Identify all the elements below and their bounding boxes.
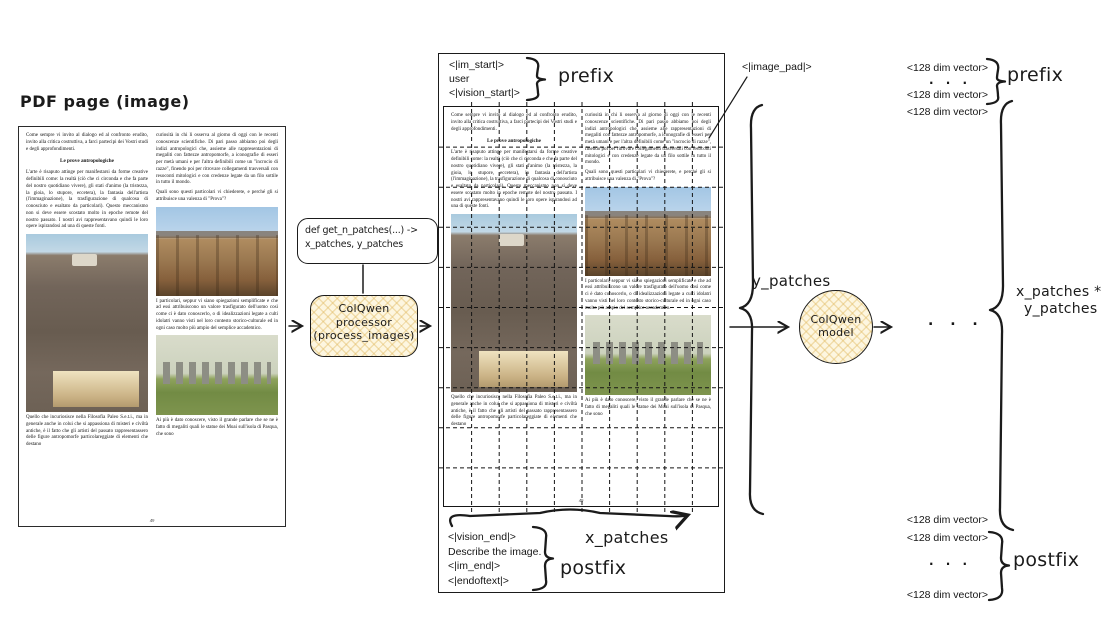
pdf-paragraph: curiosità in chi li osserva al giorno di… — [156, 133, 278, 187]
vision-start-token: <|vision_start|> — [449, 86, 520, 100]
embedding-vector-token: <128 dim vector> — [907, 514, 988, 526]
temple-columns-photo — [156, 207, 278, 296]
pdf-paragraph: Ai più è dato conoscere, visto il grande… — [585, 398, 711, 418]
image-pad-token: <|image_pad|> — [742, 60, 812, 74]
processor-method: (process_images) — [311, 329, 417, 343]
user-token: user — [449, 72, 520, 86]
pdf-paragraph: curiosità in chi li osserva al giorno di… — [585, 113, 711, 167]
pdf-paragraph: Quali sono questi particolari vi chieder… — [156, 190, 278, 204]
output-postfix-label: postfix — [1013, 549, 1079, 571]
colqwen-pipeline-diagram: PDF page (image) Come sempre vi invito a… — [0, 0, 1116, 638]
output-prefix-label: prefix — [1007, 64, 1063, 86]
pdf-paragraph: L'arte è risaputo attinge per manifestar… — [451, 150, 577, 211]
get-n-patches-function-box: def get_n_patches(...) -> x_patches, y_p… — [297, 218, 438, 264]
pdf-paragraph: Quello che incuriosisce nella Filosofia … — [451, 395, 577, 429]
output-prefix-brace — [987, 59, 1005, 104]
pdf-right-column: curiosità in chi li osserva al giorno di… — [585, 113, 711, 500]
embedding-vector-token: <128 dim vector> — [907, 89, 988, 101]
colqwen-processor-node: ColQwen processor (process_images) — [310, 295, 418, 357]
pdf-page-image-copy: Come sempre vi invito al dialogo ed al c… — [444, 107, 718, 506]
ellipsis-patches: . . . — [928, 313, 984, 329]
patched-page-image: Come sempre vi invito al dialogo ed al c… — [443, 106, 719, 507]
pdf-page-image: Come sempre vi invito al dialogo ed al c… — [18, 126, 286, 527]
y-patches-brace — [740, 105, 763, 514]
output-postfix-brace — [989, 532, 1009, 600]
ellipsis-prefix: . . . — [929, 73, 971, 87]
patches-product-line1: x_patches * — [1016, 284, 1101, 301]
x-patches-label: x_patches — [585, 528, 669, 547]
pdf-page-label: PDF page (image) — [20, 92, 190, 111]
pdf-page-number: 49 — [444, 498, 718, 504]
patches-product-line2: y_patches — [1016, 301, 1101, 318]
pdf-paragraph: Ai più è dato conoscere, visto il grande… — [156, 418, 278, 438]
embedding-vector-token: <128 dim vector> — [907, 589, 988, 601]
processor-name-line2: processor — [311, 316, 417, 330]
patches-product-brace — [990, 101, 1013, 530]
temple-columns-photo — [585, 187, 711, 276]
stone-carving-photo — [26, 234, 148, 412]
stonehenge-photo — [156, 335, 278, 415]
embedding-vector-token: <128 dim vector> — [907, 106, 988, 118]
vision-end-token: <|vision_end|> — [448, 530, 541, 545]
postfix-token-block: <|vision_end|> Describe the image. <|im_… — [448, 530, 541, 588]
endoftext-token: <|endoftext|> — [448, 574, 541, 589]
function-signature-line2: x_patches, y_patches — [305, 238, 430, 252]
pdf-page-content: Come sempre vi invito al dialogo ed al c… — [444, 107, 718, 506]
colqwen-model-node: ColQwen model — [799, 290, 873, 364]
pdf-page-number: 49 — [19, 518, 285, 524]
ellipsis-postfix: . . . — [929, 554, 971, 568]
patches-product-label: x_patches * y_patches — [1016, 284, 1101, 318]
prefix-label: prefix — [558, 65, 614, 87]
function-signature-line1: def get_n_patches(...) -> — [305, 224, 430, 238]
im-start-token: <|im_start|> — [449, 58, 520, 72]
pdf-paragraph: L'arte è risaputo attinge per manifestar… — [26, 170, 148, 231]
pdf-section-heading: Le prove antropologiche — [26, 158, 148, 165]
pdf-paragraph: Come sempre vi invito al dialogo ed al c… — [451, 113, 577, 133]
pdf-paragraph: Come sempre vi invito al dialogo ed al c… — [26, 133, 148, 153]
model-name: ColQwen — [800, 313, 872, 326]
embedding-vector-token: <128 dim vector> — [907, 532, 988, 544]
prefix-token-block: <|im_start|> user <|vision_start|> — [449, 58, 520, 100]
pdf-page-content: Come sempre vi invito al dialogo ed al c… — [19, 127, 285, 526]
model-name-line2: model — [800, 326, 872, 339]
describe-image-text: Describe the image. — [448, 545, 541, 560]
processor-name: ColQwen — [311, 302, 417, 316]
postfix-label: postfix — [560, 557, 626, 579]
stonehenge-photo — [585, 315, 711, 395]
pdf-paragraph: I particolari, seppur vi siano spiegazio… — [585, 279, 711, 313]
y-patches-label: y_patches — [752, 272, 830, 290]
pdf-section-heading: Le prove antropologiche — [451, 138, 577, 145]
pdf-paragraph: Quello che incuriosisce nella Filosofia … — [26, 415, 148, 449]
pdf-paragraph: I particolari, seppur vi siano spiegazio… — [156, 299, 278, 333]
pdf-right-column: curiosità in chi li osserva al giorno di… — [156, 133, 278, 520]
stone-carving-photo — [451, 214, 577, 392]
pdf-left-column: Come sempre vi invito al dialogo ed al c… — [451, 113, 577, 500]
tokenized-input-box: <|im_start|> user <|vision_start|> prefi… — [438, 53, 725, 593]
pdf-left-column: Come sempre vi invito al dialogo ed al c… — [26, 133, 148, 520]
im-end-token: <|im_end|> — [448, 559, 541, 574]
pdf-paragraph: Quali sono questi particolari vi chieder… — [585, 170, 711, 184]
